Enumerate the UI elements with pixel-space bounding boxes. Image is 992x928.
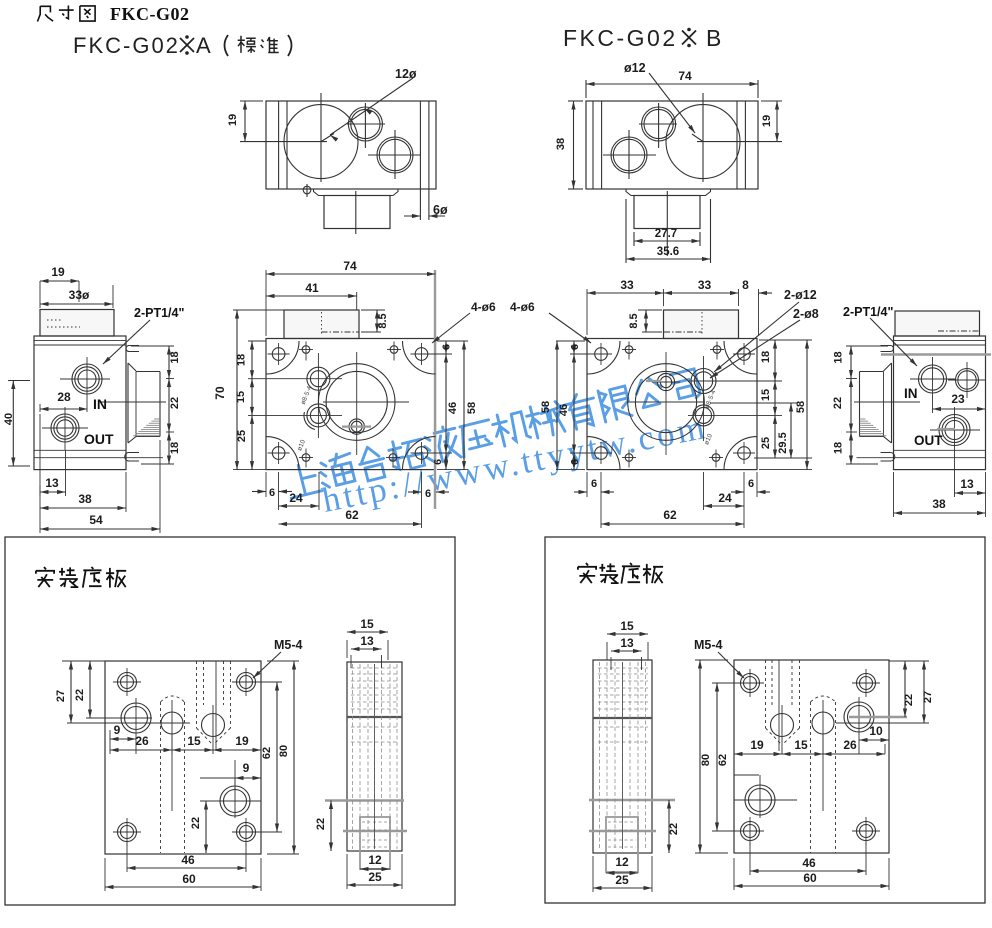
svg-text:24: 24 [718,491,732,505]
svg-text:18: 18 [169,442,181,454]
svg-text:12: 12 [615,855,629,869]
svg-text:6: 6 [569,459,581,465]
svg-text:FKC-G02: FKC-G02 [73,33,180,58]
svg-text:OUT: OUT [914,433,943,448]
svg-text:FKC-G02: FKC-G02 [110,4,190,24]
svg-text:19: 19 [51,265,65,279]
svg-text:2-ø12: 2-ø12 [784,288,817,302]
svg-text:6: 6 [432,459,444,465]
svg-text:IN: IN [904,386,918,401]
svg-text:22: 22 [832,397,844,409]
svg-text:18: 18 [833,442,845,454]
svg-text:4-ø6: 4-ø6 [471,300,496,314]
svg-text:2-PT1/4": 2-PT1/4" [134,306,184,320]
svg-text:62: 62 [663,508,677,522]
svg-text:38: 38 [932,497,946,511]
svg-text:6: 6 [425,488,431,500]
svg-text:IN: IN [93,396,107,412]
svg-text:74: 74 [678,69,692,83]
svg-text:70: 70 [213,386,227,400]
svg-text:OUT: OUT [84,431,114,447]
svg-text:15: 15 [235,391,247,403]
svg-text:12ø: 12ø [395,67,417,81]
svg-text:27: 27 [922,691,934,703]
svg-text:38: 38 [555,138,567,150]
svg-text:58: 58 [795,401,807,413]
svg-text:33: 33 [698,278,712,292]
svg-text:80: 80 [278,745,290,757]
svg-text:12: 12 [368,853,382,867]
svg-text:18: 18 [760,351,772,363]
svg-text:22: 22 [903,694,915,706]
svg-text:M5-4: M5-4 [694,638,723,652]
svg-text:25: 25 [236,430,248,442]
svg-text:22: 22 [668,823,680,835]
svg-text:80: 80 [700,754,712,766]
svg-text:41: 41 [305,281,319,295]
svg-text:8: 8 [742,278,749,292]
svg-text:18: 18 [169,351,181,363]
svg-text:19: 19 [235,734,249,748]
svg-text:M5-4: M5-4 [274,638,303,652]
svg-text:15: 15 [794,738,808,752]
svg-text:19: 19 [761,115,773,127]
svg-text:62: 62 [345,508,359,522]
svg-text:23: 23 [951,392,965,406]
svg-text:10: 10 [869,724,883,738]
svg-text:ø12: ø12 [624,61,646,75]
svg-text:26: 26 [843,738,857,752]
svg-text:62: 62 [717,754,729,766]
svg-text:15: 15 [360,617,374,631]
svg-text:13: 13 [620,636,634,650]
svg-text:27.7: 27.7 [655,228,677,240]
svg-text:4-ø6: 4-ø6 [510,300,535,314]
svg-text:6: 6 [441,344,453,350]
svg-text:25: 25 [760,437,772,449]
svg-text:35.6: 35.6 [657,246,679,258]
svg-text:46: 46 [447,402,459,414]
svg-text:B: B [706,25,721,51]
svg-text:8.5: 8.5 [377,313,389,328]
svg-text:19: 19 [750,738,764,752]
svg-text:58: 58 [466,402,478,414]
svg-text:26: 26 [135,734,149,748]
svg-text:58: 58 [540,401,552,413]
svg-text:15: 15 [187,734,201,748]
svg-text:74: 74 [343,259,357,273]
svg-text:33ø: 33ø [69,288,90,302]
svg-text:FKC-G02: FKC-G02 [563,25,678,51]
svg-text:9: 9 [114,723,121,737]
svg-text:A: A [196,33,211,58]
svg-text:15: 15 [620,619,634,633]
svg-text:18: 18 [236,354,248,366]
svg-text:8.5: 8.5 [628,313,640,328]
svg-text:29.5: 29.5 [777,432,789,453]
svg-text:6ø: 6ø [433,203,448,217]
svg-text:22: 22 [190,817,202,829]
svg-text:13: 13 [960,477,974,491]
svg-text:19: 19 [227,114,239,126]
svg-text:27: 27 [55,690,67,702]
svg-text:46: 46 [181,853,195,867]
svg-text:18: 18 [833,351,845,363]
svg-text:46: 46 [802,856,816,870]
svg-text:25: 25 [615,873,629,887]
svg-text:22: 22 [74,689,86,701]
svg-text:15: 15 [760,389,772,401]
svg-text:6: 6 [748,478,754,490]
svg-text:13: 13 [360,634,374,648]
svg-text:22: 22 [169,397,181,409]
svg-text:6: 6 [269,487,275,499]
svg-text:60: 60 [182,872,196,886]
svg-text:9: 9 [243,761,250,775]
svg-text:22: 22 [315,818,327,830]
svg-text:2-PT1/4": 2-PT1/4" [843,305,893,319]
svg-text:60: 60 [803,871,817,885]
svg-text:24: 24 [289,491,303,505]
svg-text:2-ø8: 2-ø8 [793,307,819,321]
svg-text:54: 54 [89,513,103,527]
svg-text:13: 13 [45,476,59,490]
svg-text:38: 38 [78,492,92,506]
svg-text:25: 25 [368,870,382,884]
svg-text:46: 46 [558,404,570,416]
svg-text:28: 28 [57,390,71,404]
svg-text:6: 6 [569,344,581,350]
svg-text:6: 6 [591,478,597,490]
svg-text:40: 40 [3,413,15,425]
svg-text:33: 33 [620,278,634,292]
svg-text:62: 62 [261,747,273,759]
